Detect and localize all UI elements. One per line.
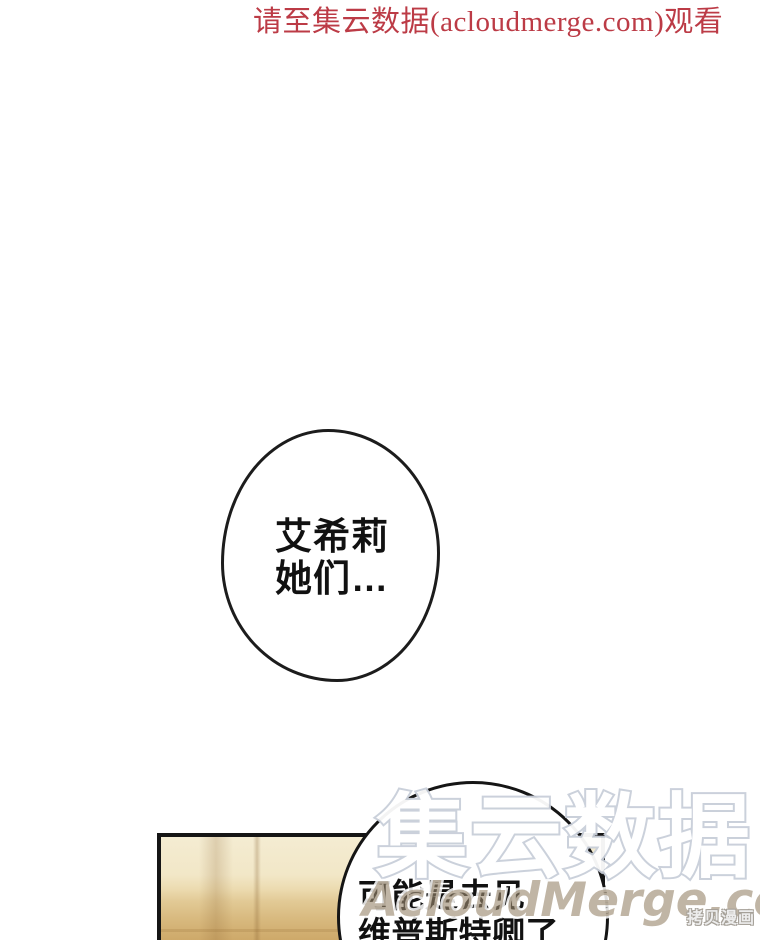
reader-notice-text: 请至集云数据(acloudmerge.com)观看 — [253, 5, 723, 39]
bubble1-line2: 她们… — [275, 558, 389, 600]
copy-tag-label: 拷贝漫画 — [687, 910, 755, 928]
speech-bubble-ellipse: 艾希莉 她们… — [221, 429, 440, 682]
watermark-brand-cjk: 集云数据 — [376, 790, 752, 886]
bubble1-line1: 艾希莉 — [275, 516, 389, 558]
comic-page: 请至集云数据(acloudmerge.com)观看 艾希莉 她们… 可能是去见 … — [0, 0, 760, 940]
speech-bubble-ellipse-text: 艾希莉 她们… — [275, 516, 389, 600]
